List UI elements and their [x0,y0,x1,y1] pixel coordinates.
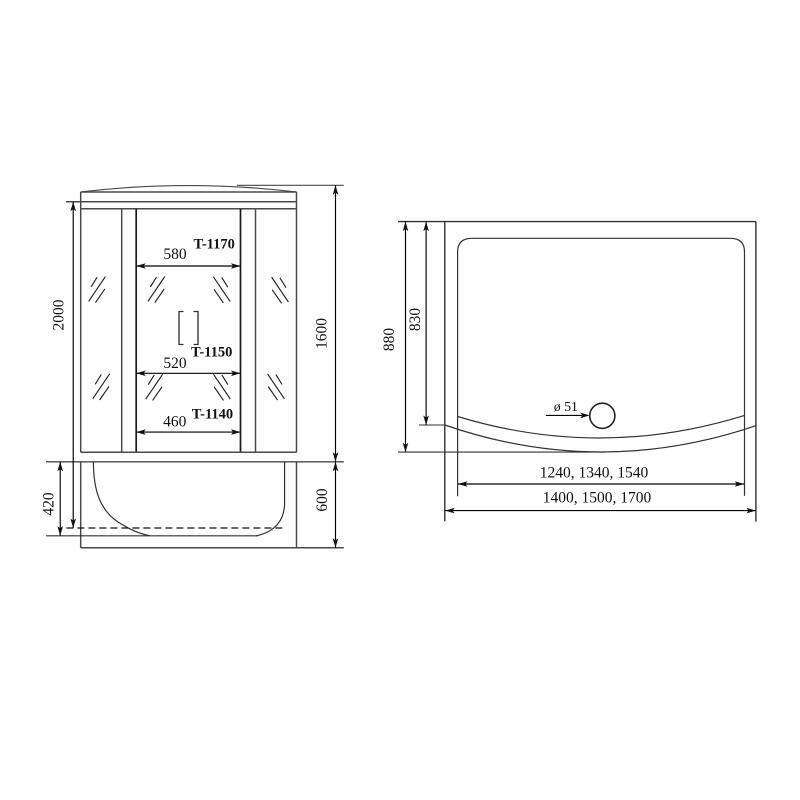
svg-text:T-1170: T-1170 [194,236,235,252]
svg-text:ø 51: ø 51 [554,399,578,414]
svg-text:830: 830 [407,308,424,332]
svg-text:600: 600 [314,488,331,512]
svg-text:2000: 2000 [51,299,68,330]
svg-text:520: 520 [163,355,187,372]
svg-text:1400, 1500, 1700: 1400, 1500, 1700 [543,490,652,507]
svg-text:T-1150: T-1150 [191,345,232,361]
svg-text:880: 880 [381,328,398,352]
svg-text:T-1140: T-1140 [192,407,233,423]
svg-text:460: 460 [163,414,187,431]
svg-text:1240, 1340, 1540: 1240, 1340, 1540 [540,465,649,482]
svg-text:420: 420 [41,492,58,516]
svg-text:1600: 1600 [313,318,330,349]
svg-text:580: 580 [163,246,187,263]
